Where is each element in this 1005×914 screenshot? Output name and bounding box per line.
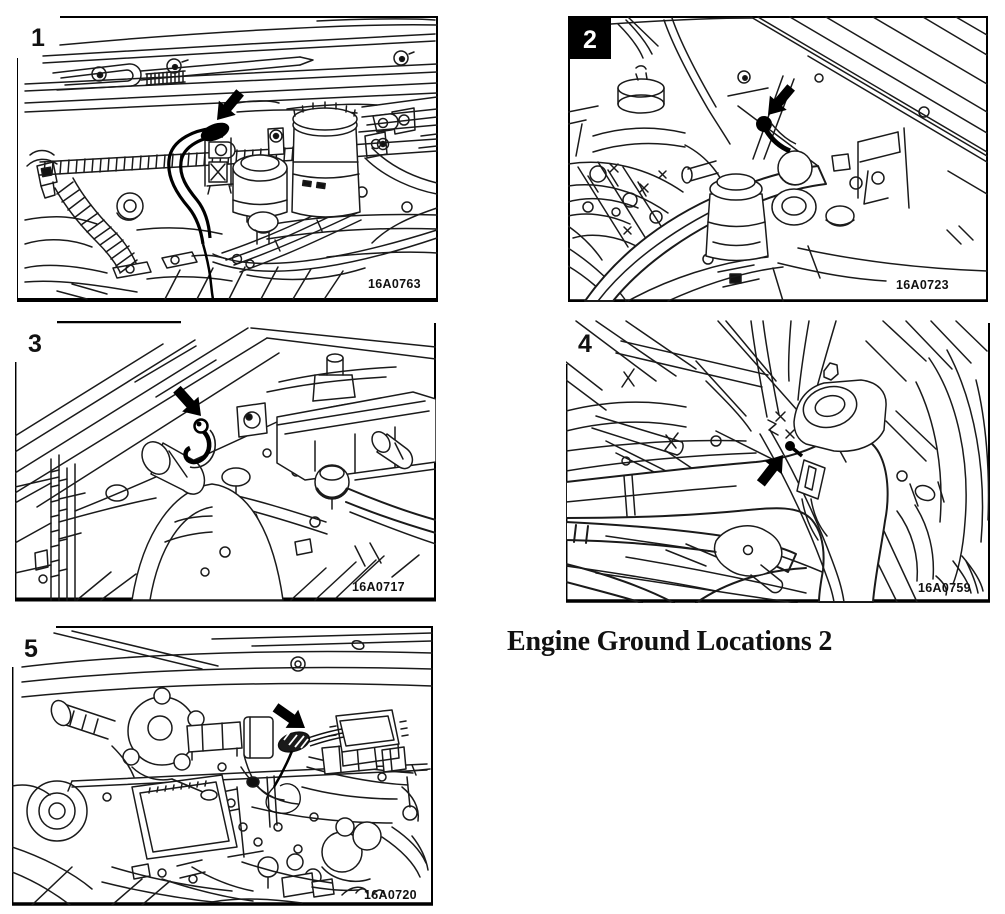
svg-text:16A0763: 16A0763: [368, 277, 421, 291]
svg-text:4: 4: [578, 330, 592, 358]
svg-text:16A0723: 16A0723: [896, 278, 949, 292]
svg-text:16A0759: 16A0759: [918, 581, 971, 595]
svg-text:5: 5: [24, 635, 38, 663]
svg-text:2: 2: [583, 26, 597, 54]
svg-text:1: 1: [31, 24, 45, 52]
svg-text:16A0720: 16A0720: [364, 888, 417, 902]
svg-text:3: 3: [28, 330, 42, 358]
svg-text:16A0717: 16A0717: [352, 580, 405, 594]
